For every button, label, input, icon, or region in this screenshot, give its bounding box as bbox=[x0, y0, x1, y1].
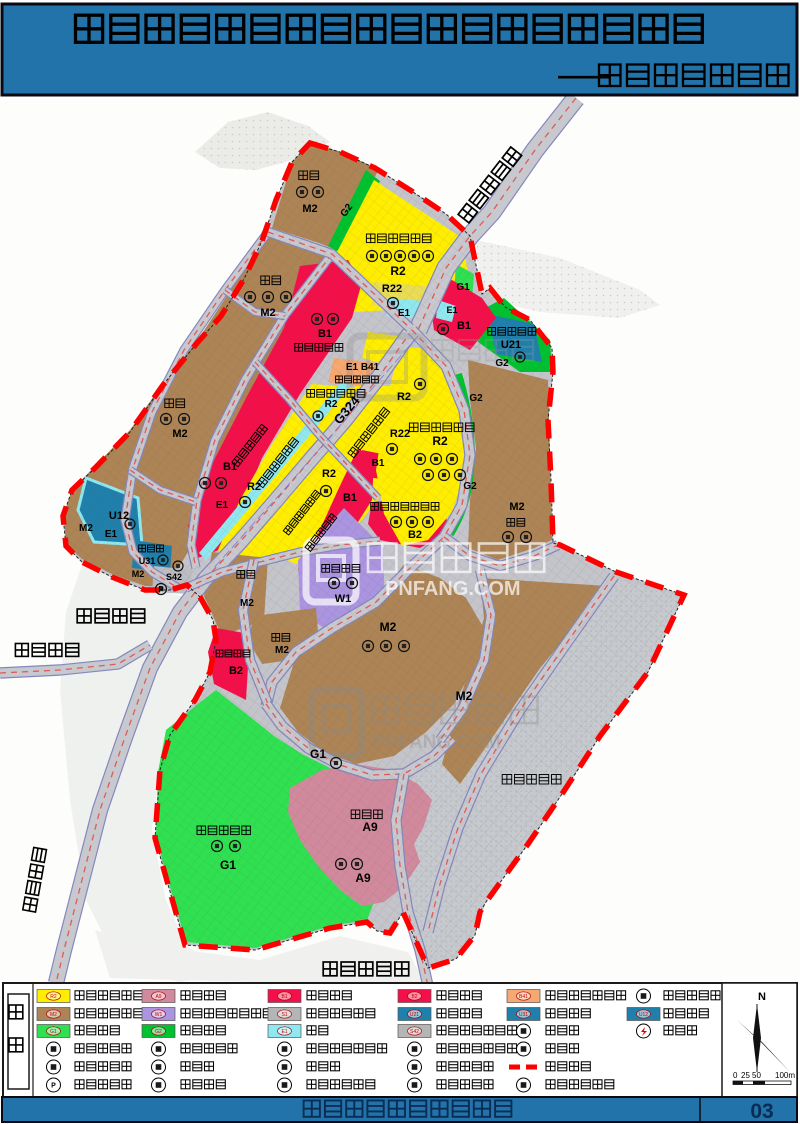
svg-text:PNFANG.COM: PNFANG.COM bbox=[372, 732, 501, 753]
svg-text:M2: M2 bbox=[50, 1012, 57, 1018]
svg-text:B2: B2 bbox=[408, 529, 422, 541]
svg-text:R2: R2 bbox=[397, 391, 411, 403]
svg-text:G1: G1 bbox=[50, 1029, 57, 1035]
svg-text:R2: R2 bbox=[322, 468, 336, 480]
svg-text:G1: G1 bbox=[220, 858, 236, 872]
svg-text:U12: U12 bbox=[639, 1012, 648, 1018]
svg-text:M2: M2 bbox=[275, 645, 289, 656]
svg-text:M2: M2 bbox=[456, 689, 473, 703]
svg-text:B1: B1 bbox=[457, 320, 471, 332]
svg-text:R2: R2 bbox=[325, 399, 338, 410]
svg-text:50: 50 bbox=[752, 1071, 761, 1080]
svg-text:B1: B1 bbox=[281, 994, 287, 1000]
svg-text:M2: M2 bbox=[172, 428, 187, 440]
svg-text:S42: S42 bbox=[410, 1029, 419, 1035]
svg-text:M2: M2 bbox=[302, 203, 317, 215]
svg-text:E1: E1 bbox=[281, 1029, 287, 1035]
svg-text:100m: 100m bbox=[775, 1071, 795, 1080]
svg-text:S42: S42 bbox=[166, 572, 182, 582]
svg-text:G2: G2 bbox=[155, 1029, 162, 1035]
svg-text:A9: A9 bbox=[155, 994, 161, 1000]
svg-text:M2: M2 bbox=[240, 598, 254, 609]
svg-text:W1: W1 bbox=[335, 593, 352, 605]
svg-text:A9: A9 bbox=[362, 820, 378, 834]
svg-text:B1: B1 bbox=[318, 328, 332, 340]
svg-text:R22: R22 bbox=[382, 283, 402, 295]
svg-text:B1: B1 bbox=[223, 461, 237, 473]
svg-text:B1: B1 bbox=[372, 458, 385, 469]
svg-text:A9: A9 bbox=[355, 871, 371, 885]
svg-text:R2: R2 bbox=[247, 481, 261, 493]
svg-text:E1: E1 bbox=[105, 529, 118, 540]
svg-text:B2: B2 bbox=[411, 994, 417, 1000]
svg-text:R2: R2 bbox=[432, 434, 448, 448]
svg-text:E1: E1 bbox=[398, 308, 411, 319]
svg-text:M2: M2 bbox=[380, 620, 397, 634]
svg-text:U31: U31 bbox=[519, 1012, 528, 1018]
svg-text:G2: G2 bbox=[463, 481, 477, 492]
svg-text:U21: U21 bbox=[501, 339, 521, 351]
svg-text:R2: R2 bbox=[390, 264, 406, 278]
svg-text:U21: U21 bbox=[410, 1012, 419, 1018]
svg-text:G1: G1 bbox=[456, 282, 470, 293]
svg-text:M2: M2 bbox=[509, 501, 524, 513]
svg-text:B41: B41 bbox=[519, 994, 528, 1000]
svg-text:N: N bbox=[758, 991, 766, 1003]
svg-text:B1: B1 bbox=[343, 492, 357, 504]
svg-text:G1: G1 bbox=[310, 747, 326, 761]
svg-text:M2: M2 bbox=[260, 307, 275, 319]
svg-text:W1: W1 bbox=[155, 1012, 163, 1018]
svg-text:B2: B2 bbox=[229, 665, 243, 677]
svg-text:P: P bbox=[51, 1083, 56, 1090]
svg-text:0: 0 bbox=[733, 1071, 738, 1080]
svg-text:E1: E1 bbox=[346, 362, 359, 373]
svg-text:M2: M2 bbox=[132, 569, 145, 579]
svg-text:B41: B41 bbox=[361, 362, 380, 373]
svg-text:M2: M2 bbox=[79, 523, 93, 534]
svg-text:G2: G2 bbox=[469, 393, 483, 404]
svg-text:R2: R2 bbox=[50, 994, 57, 1000]
svg-text:P: P bbox=[158, 585, 164, 594]
svg-text:G2: G2 bbox=[495, 358, 509, 369]
svg-text:03: 03 bbox=[750, 1100, 773, 1123]
svg-text:U31: U31 bbox=[139, 556, 156, 566]
svg-text:PNFANG.COM: PNFANG.COM bbox=[385, 578, 521, 600]
svg-text:R22: R22 bbox=[390, 428, 410, 440]
svg-text:S1: S1 bbox=[281, 1012, 287, 1018]
svg-text:E1: E1 bbox=[216, 500, 229, 511]
svg-text:25: 25 bbox=[741, 1071, 750, 1080]
svg-text:E1: E1 bbox=[446, 305, 457, 315]
